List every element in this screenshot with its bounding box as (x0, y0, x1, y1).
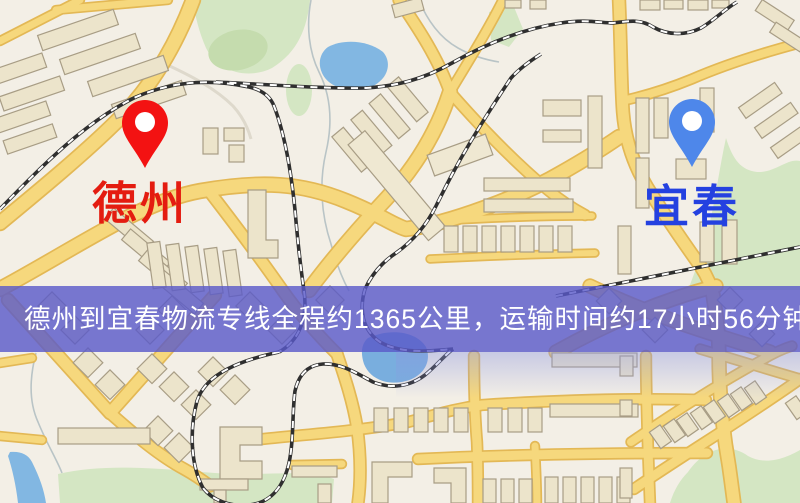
map-canvas[interactable]: 德州 宜春 德州到宜春物流专线全程约1365公里，运输时间约17小时56分钟. (0, 0, 800, 503)
lake (320, 42, 388, 90)
destination-label: 宜春 (644, 181, 740, 232)
route-banner-text: 德州到宜春物流专线全程约1365公里，运输时间约17小时56分钟. (24, 304, 800, 334)
map-view: 德州 宜春 德州到宜春物流专线全程约1365公里，运输时间约17小时56分钟. (0, 0, 800, 503)
banner-shadow (396, 352, 800, 398)
route-banner: 德州到宜春物流专线全程约1365公里，运输时间约17小时56分钟. (0, 286, 800, 352)
origin-label: 德州 (92, 178, 188, 229)
